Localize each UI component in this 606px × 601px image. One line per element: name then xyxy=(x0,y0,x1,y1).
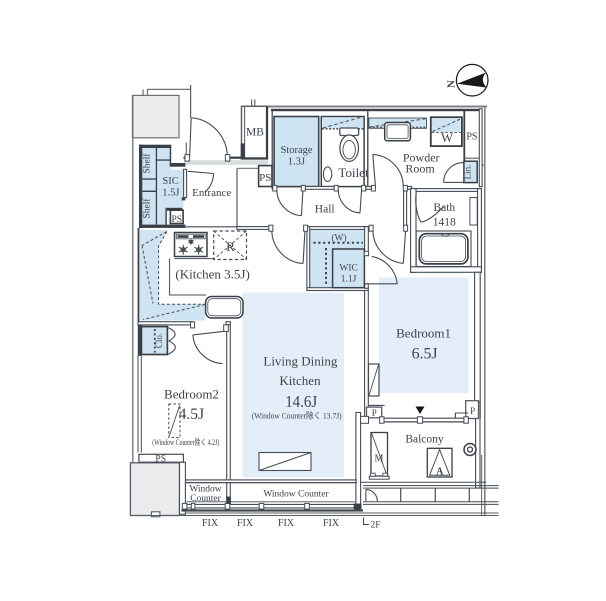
svg-text:P: P xyxy=(372,408,377,418)
svg-text:(Window Counter除く 13.7J): (Window Counter除く 13.7J) xyxy=(252,410,342,420)
svg-text:Kitchen: Kitchen xyxy=(279,373,321,388)
svg-text:(W): (W) xyxy=(331,233,346,244)
svg-text:P: P xyxy=(470,406,475,416)
svg-text:WIC: WIC xyxy=(339,264,357,274)
svg-text:SIC: SIC xyxy=(162,176,178,187)
svg-text:R: R xyxy=(226,239,235,254)
svg-text:1.5J: 1.5J xyxy=(162,188,179,199)
svg-text:PS: PS xyxy=(466,132,477,143)
svg-text:FIX: FIX xyxy=(323,518,340,529)
svg-text:1.1J: 1.1J xyxy=(341,275,357,285)
svg-text:PS: PS xyxy=(155,455,166,465)
svg-text:Entrance: Entrance xyxy=(192,187,231,199)
svg-text:1.3J: 1.3J xyxy=(288,157,305,168)
svg-text:Balcony: Balcony xyxy=(405,434,444,446)
svg-text:FIX: FIX xyxy=(278,518,295,529)
svg-text:FIX: FIX xyxy=(202,518,219,529)
svg-text:W: W xyxy=(441,131,453,145)
svg-text:Room: Room xyxy=(405,162,435,176)
svg-text:Bedroom2: Bedroom2 xyxy=(164,387,219,402)
svg-text:(Kitchen 3.5J): (Kitchen 3.5J) xyxy=(175,266,249,281)
svg-text:M: M xyxy=(375,454,384,465)
svg-text:PS: PS xyxy=(172,215,183,225)
svg-text:Bath: Bath xyxy=(433,202,455,214)
svg-text:Counter: Counter xyxy=(190,494,221,504)
svg-text:14.6J: 14.6J xyxy=(285,392,318,411)
svg-text:2F: 2F xyxy=(370,521,380,531)
svg-text:Clo.: Clo. xyxy=(154,333,164,348)
svg-text:PS: PS xyxy=(259,172,271,184)
svg-text:Bedroom1: Bedroom1 xyxy=(396,326,451,341)
svg-text:FIX: FIX xyxy=(237,518,254,529)
svg-text:(Window Counter除く 4.2J): (Window Counter除く 4.2J) xyxy=(152,437,219,447)
svg-text:Living Dining: Living Dining xyxy=(263,354,338,369)
svg-text:Window Counter: Window Counter xyxy=(263,490,329,500)
svg-text:6.5J: 6.5J xyxy=(412,346,438,363)
svg-text:A: A xyxy=(436,466,444,477)
svg-text:Shelf: Shelf xyxy=(141,198,152,219)
svg-text:Shelf: Shelf xyxy=(141,153,152,174)
svg-text:Hall: Hall xyxy=(315,204,335,216)
svg-text:Lin.: Lin. xyxy=(462,165,472,180)
svg-text:Toilet: Toilet xyxy=(338,165,369,180)
svg-text:N: N xyxy=(446,80,458,88)
svg-text:4.5J: 4.5J xyxy=(179,406,205,423)
svg-text:Storage: Storage xyxy=(280,145,312,156)
svg-text:1418: 1418 xyxy=(433,217,456,229)
svg-text:Window: Window xyxy=(189,484,221,494)
svg-text:MB: MB xyxy=(246,127,264,139)
